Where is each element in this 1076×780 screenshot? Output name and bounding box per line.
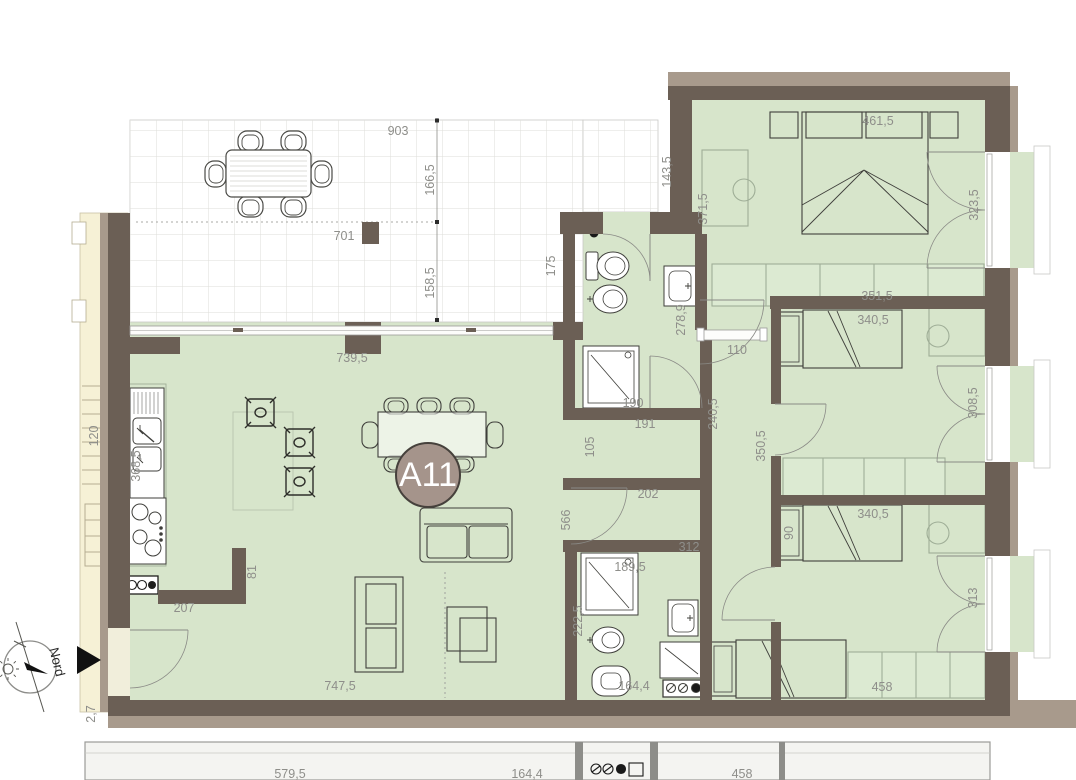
sink-icon	[668, 600, 698, 636]
dim-label-bath2-depth: 222,5	[572, 605, 585, 636]
sun-icon	[0, 658, 19, 680]
dim-label-bed3-wardrobe: 90	[783, 526, 796, 540]
dim-label-bed2-width: 340,5	[857, 314, 888, 327]
dim-label-master-bed-width: 461,5	[862, 115, 893, 128]
dim-label-terrace-depth-lower: 158,5	[424, 267, 437, 298]
dim-label-kitchen-wall: 207	[174, 602, 195, 615]
dim-label-terrace-edge-143: 143,5	[661, 156, 674, 187]
window-icon	[72, 300, 86, 322]
dim-label-bed3-width: 340,5	[857, 508, 888, 521]
dim-label-living-hall-wall: 566	[560, 510, 573, 531]
dim-label-kitchen-counter: 368,5	[130, 450, 143, 481]
dim-label-master-door: 323,5	[968, 189, 981, 220]
dim-label-kitchen-return: 81	[246, 565, 259, 579]
washer-icon	[660, 642, 705, 697]
dim-label-store-width: 191	[635, 418, 656, 431]
cooktop	[128, 498, 166, 564]
dim-label-hall-wall: 240,5	[707, 398, 720, 429]
dim-label-master-wardrobe: 351,5	[861, 290, 892, 303]
dim-label-living-window-width: 739,5	[336, 352, 367, 365]
dim-label-terrace-post: 701	[334, 230, 355, 243]
dim-label-store-depth: 105	[584, 437, 597, 458]
wardrobe	[848, 652, 985, 698]
dim-label-terrace-depth-upper: 166,5	[424, 164, 437, 195]
dim-label-hall-length: 350,5	[755, 430, 768, 461]
dim-label-bed3-bedwall: 458	[872, 681, 893, 694]
dim-label-bed2-door: 308,5	[967, 387, 980, 418]
sink-icon	[664, 266, 696, 306]
dim-label-strip-164: 164,4	[511, 768, 542, 780]
north-compass	[0, 622, 56, 712]
dim-label-hall-lower: 312	[679, 541, 700, 554]
wardrobe	[783, 458, 945, 496]
toilet-icon	[586, 252, 629, 280]
unit-badge-label: A11	[399, 456, 457, 495]
dim-label-master-depth: 371,5	[697, 193, 710, 224]
window-icon	[72, 222, 86, 244]
dim-label-bath1-width: 190	[623, 397, 644, 410]
dim-label-bath1-depth: 278,9	[675, 304, 688, 335]
dim-label-living-width: 747,5	[324, 680, 355, 693]
dim-label-hall-opening: 110	[727, 344, 747, 357]
unit-badge: A11	[395, 442, 461, 508]
dim-label-terrace-edge-175: 175	[545, 256, 558, 277]
floor-plan: A11 Nord 903166,5158,5701739,5175143,512…	[0, 0, 1076, 780]
dim-label-strip-27: 2,7	[85, 705, 98, 722]
floorplan-drawing	[0, 0, 1076, 780]
dim-label-bath2-shower: 189,5	[614, 561, 645, 574]
dim-label-bath2-width: 164,4	[618, 680, 649, 693]
dim-label-bed3-door: 313	[967, 588, 980, 609]
dim-label-strip-458: 458	[732, 768, 753, 780]
terrace-post	[362, 222, 379, 244]
dim-label-terrace-width: 903	[388, 125, 409, 138]
dim-label-stair-width: 120	[88, 426, 101, 447]
dim-label-store-opening: 202	[638, 488, 659, 501]
dim-label-strip-579: 579,5	[274, 768, 305, 780]
